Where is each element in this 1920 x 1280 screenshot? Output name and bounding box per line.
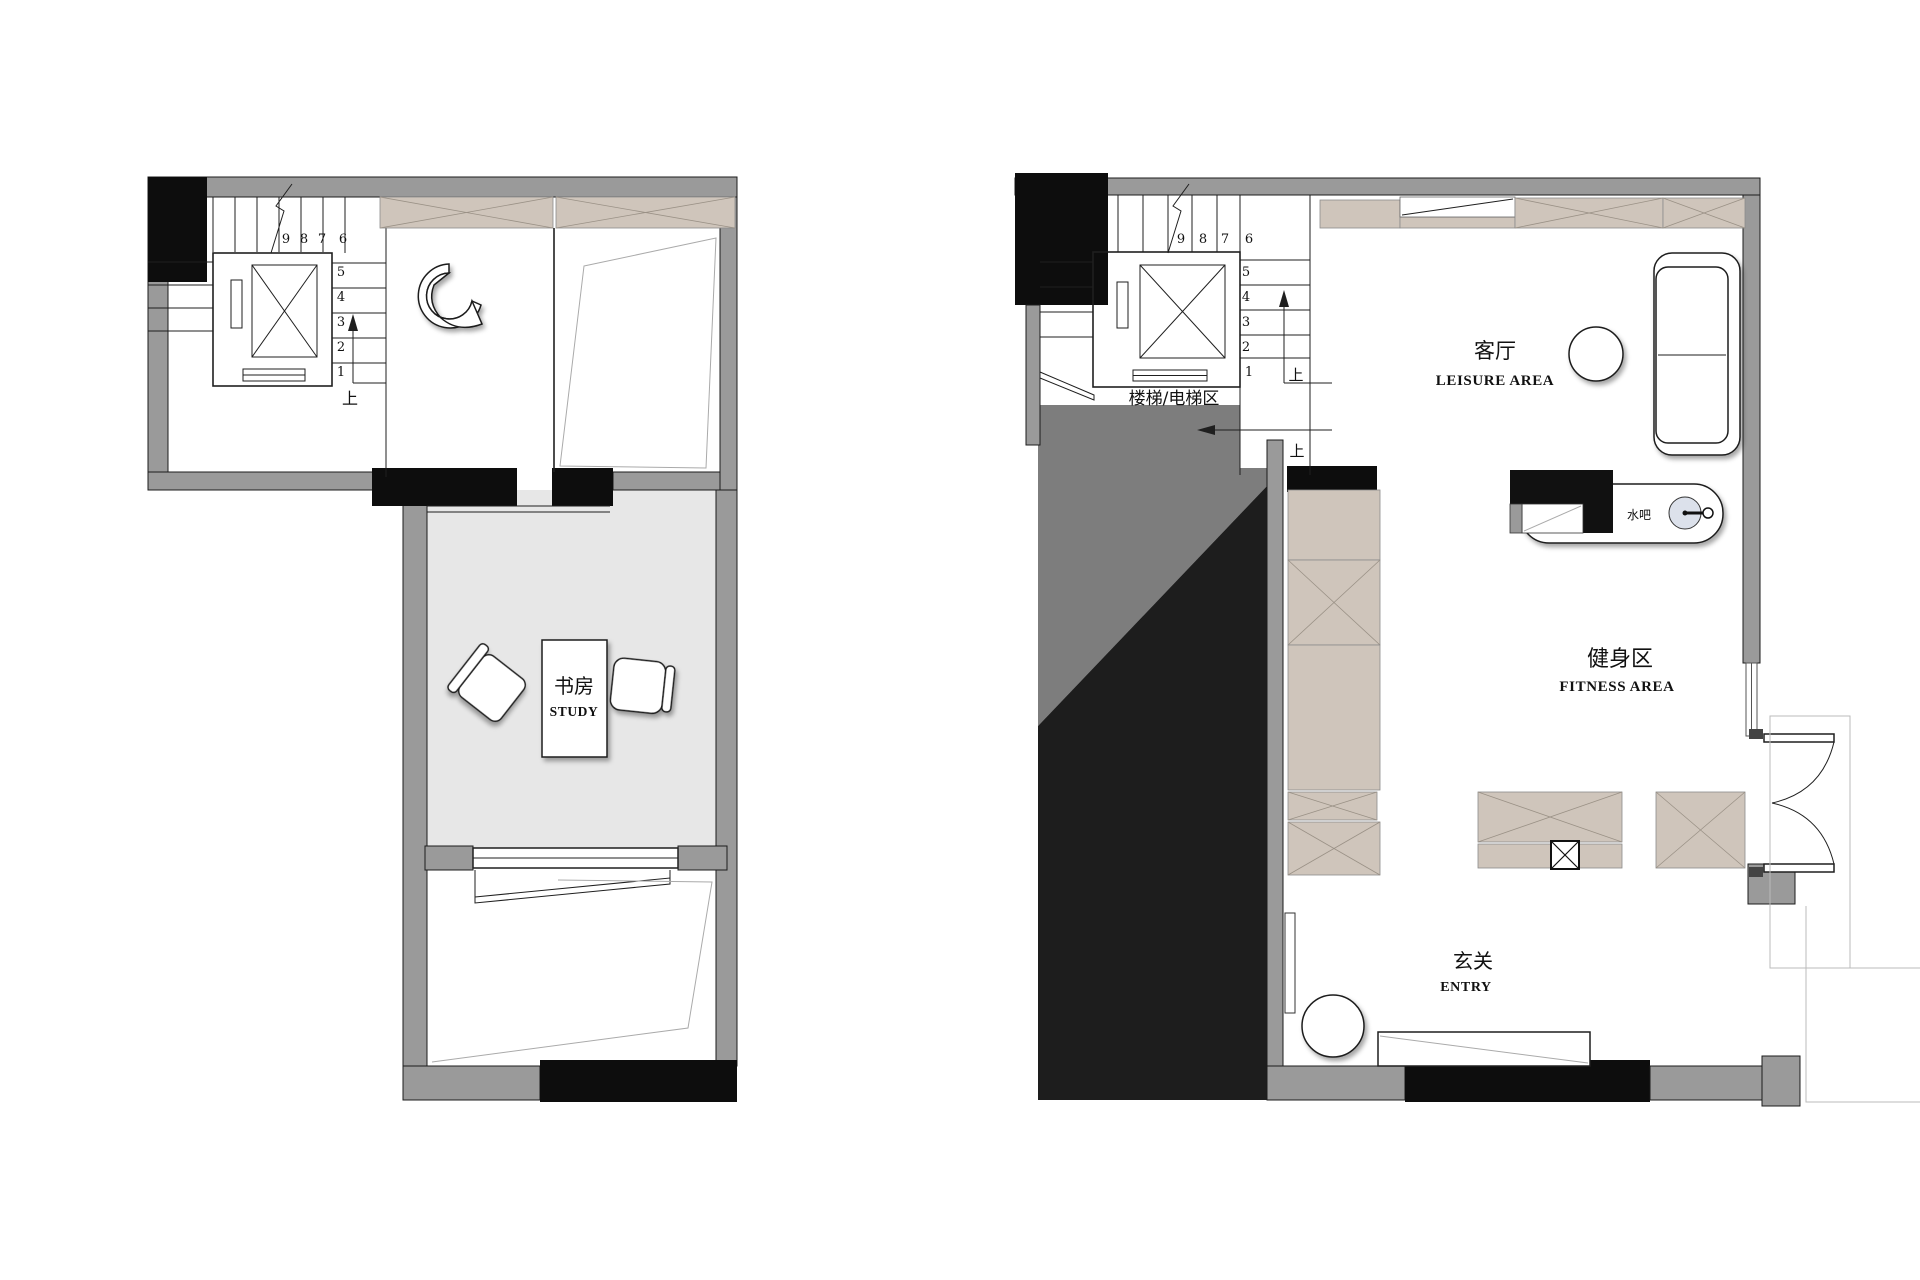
stair-number: 8 [1199,232,1207,247]
stair-number: 6 [1245,232,1253,247]
sofa [1654,253,1740,455]
cabinet-column-mid [1288,490,1380,875]
stair-number: 9 [1177,232,1185,247]
water-bar-label: 水吧 [1627,508,1651,522]
cabinets-top-right-plan [1320,197,1745,228]
up-label-left: 上 [342,389,358,408]
black-wall-mid [1287,466,1377,492]
water-bar-cabinet-black [1510,470,1613,504]
round-table [1569,327,1623,381]
stair-number: 1 [337,365,345,380]
entry-label-en: ENTRY [1440,980,1492,995]
stair-number: 7 [318,232,326,247]
fitness-label-zh: 健身区 [1587,647,1653,672]
floor-plan-canvas: 9 8 7 6 5 4 3 2 1 上 [0,0,1920,1280]
stair-number: 2 [337,340,345,355]
black-wall-study-right [552,468,613,506]
study-label-en: STUDY [550,704,599,719]
black-wall-corner-left [148,177,207,282]
water-bar-side-panel [1510,504,1522,533]
stair-number: 5 [337,265,345,280]
entry-pouf [1302,995,1364,1057]
cabinet-row-fitness [1478,792,1745,869]
black-wall-bottom-left-plan [540,1060,737,1102]
wall-door-panel [1285,913,1295,1013]
water-bar-cabinet-black-2 [1583,504,1613,533]
leisure-label-en: LEISURE AREA [1436,373,1554,389]
wall-nib-study-bottom-left [425,846,473,870]
stair-number: 3 [1242,315,1250,330]
stair-area-label: 楼梯/电梯区 [1129,389,1220,409]
black-wall-corner-right [1015,173,1108,305]
stair-number: 5 [1242,265,1250,280]
fitness-label-en: FITNESS AREA [1559,679,1674,695]
stair-number: 6 [339,232,347,247]
stair-number: 4 [1242,290,1250,305]
black-wall-study-left [372,468,517,506]
entry-label-zh: 玄关 [1453,949,1493,973]
stair-number: 9 [282,232,290,247]
up-label-right-1: 上 [1288,366,1303,384]
stair-number: 1 [1245,365,1253,380]
stair-number: 8 [300,232,308,247]
stair-number: 7 [1221,232,1229,247]
equipment-box [1551,841,1579,869]
stair-number: 2 [1242,340,1250,355]
study-desk [542,640,607,757]
door-leaf-top [1764,734,1834,742]
leisure-label-zh: 客厅 [1474,339,1516,363]
door-leaf-bottom [1764,864,1834,872]
stair-number: 3 [337,315,345,330]
study-label-zh: 书房 [554,674,594,698]
up-label-right-2: 上 [1289,442,1304,460]
wall-nib-study-bottom-right [678,846,727,870]
stair-number: 4 [337,290,345,305]
